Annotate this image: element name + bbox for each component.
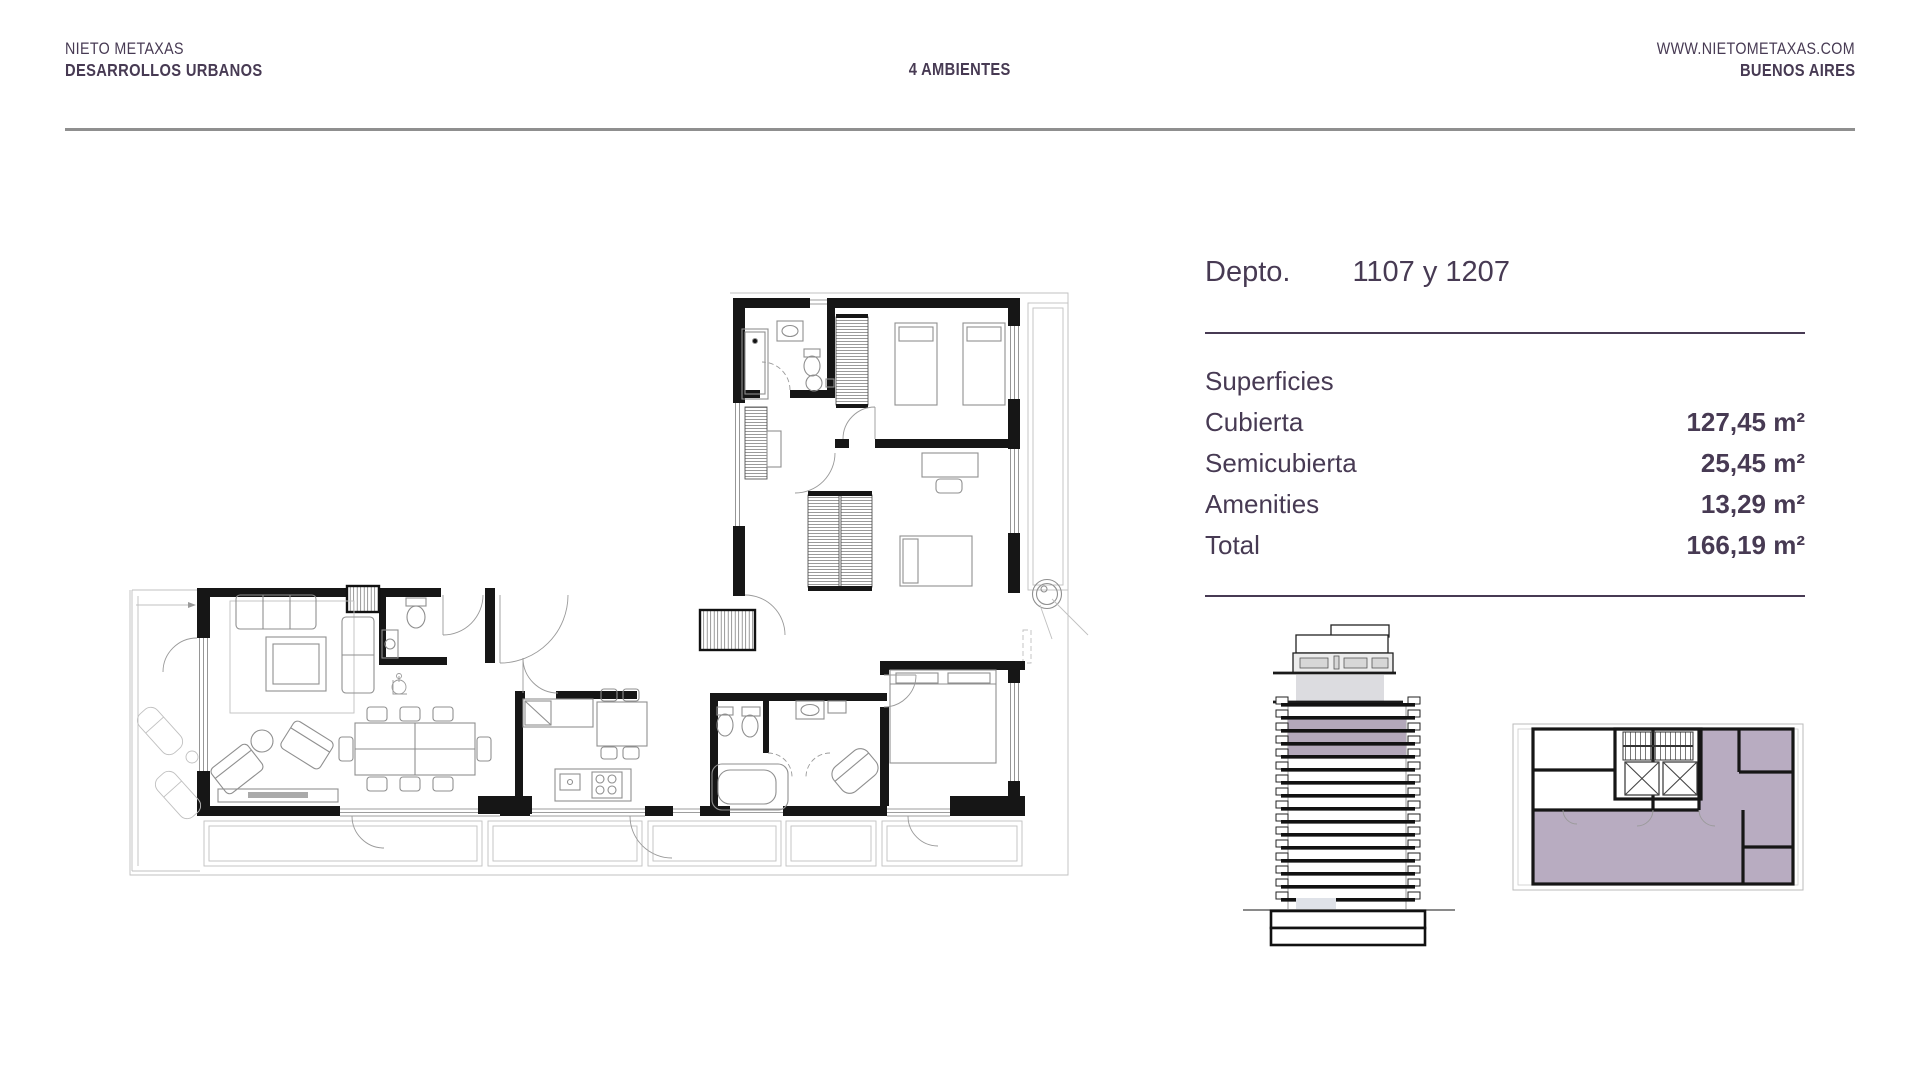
powder-room [382,598,426,658]
website-block: WWW.NIETOMETAXAS.COM BUENOS AIRES [1619,38,1855,82]
brand-name: NIETO METAXAS [65,38,184,59]
window-bands [200,300,1019,816]
surface-value: 13,29 m² [1701,484,1805,525]
surface-value: 166,19 m² [1686,525,1805,566]
tower-base [1243,898,1455,945]
stair-core [1623,732,1697,795]
surface-value: 127,45 m² [1686,402,1805,443]
surface-label: Total [1205,525,1260,566]
table-row: Cubierta 127,45 m² [1205,402,1805,443]
bedroom-furniture [895,323,1005,586]
niche-hatch [700,610,755,650]
bathroom-fixtures [742,321,834,399]
surface-label: Cubierta [1205,402,1303,443]
surface-value: 25,45 m² [1701,443,1805,484]
table-row: Amenities 13,29 m² [1205,484,1805,525]
door-arcs [163,362,938,858]
wheelchair-icon [392,674,407,695]
unit-number: 1107 y 1207 [1352,256,1510,288]
penthouse [1273,625,1403,702]
terrace-lounges [134,704,205,823]
master-bed [890,670,996,763]
brochure-page: NIETO METAXAS DESARROLLOS URBANOS 4 AMBI… [0,0,1919,1079]
city-label: BUENOS AIRES [1740,60,1855,81]
dining-set [339,707,491,791]
surfaces-table: Cubierta 127,45 m² Semicubierta 25,45 m²… [1205,402,1805,566]
walls [197,298,1025,816]
unit-number-row: Depto.1107 y 1207 [1205,256,1510,289]
surface-label: Semicubierta [1205,443,1357,484]
jacuzzi [1033,580,1089,640]
table-row: Semicubierta 25,45 m² [1205,443,1805,484]
tower-body [1276,697,1420,910]
website-url: WWW.NIETOMETAXAS.COM [1657,38,1855,59]
info-divider-bottom [1205,595,1805,597]
wardrobes [745,314,872,591]
unit-label: Depto. [1205,256,1290,288]
table-row: Total 166,19 m² [1205,525,1805,566]
surface-label: Amenities [1205,484,1319,525]
header-divider [65,128,1855,131]
property-lines [130,293,1068,875]
highlighted-floors [1288,720,1406,755]
niche-hatch [347,586,379,612]
surfaces-title: Superficies [1205,366,1334,397]
key-plan-drawing [1503,712,1815,904]
kitchen [523,689,647,801]
living-furniture [209,595,374,802]
info-divider-top [1205,332,1805,334]
main-bathrooms [712,701,882,810]
floor-plan-drawing [100,283,1090,883]
tower-elevation-drawing [1243,623,1455,971]
